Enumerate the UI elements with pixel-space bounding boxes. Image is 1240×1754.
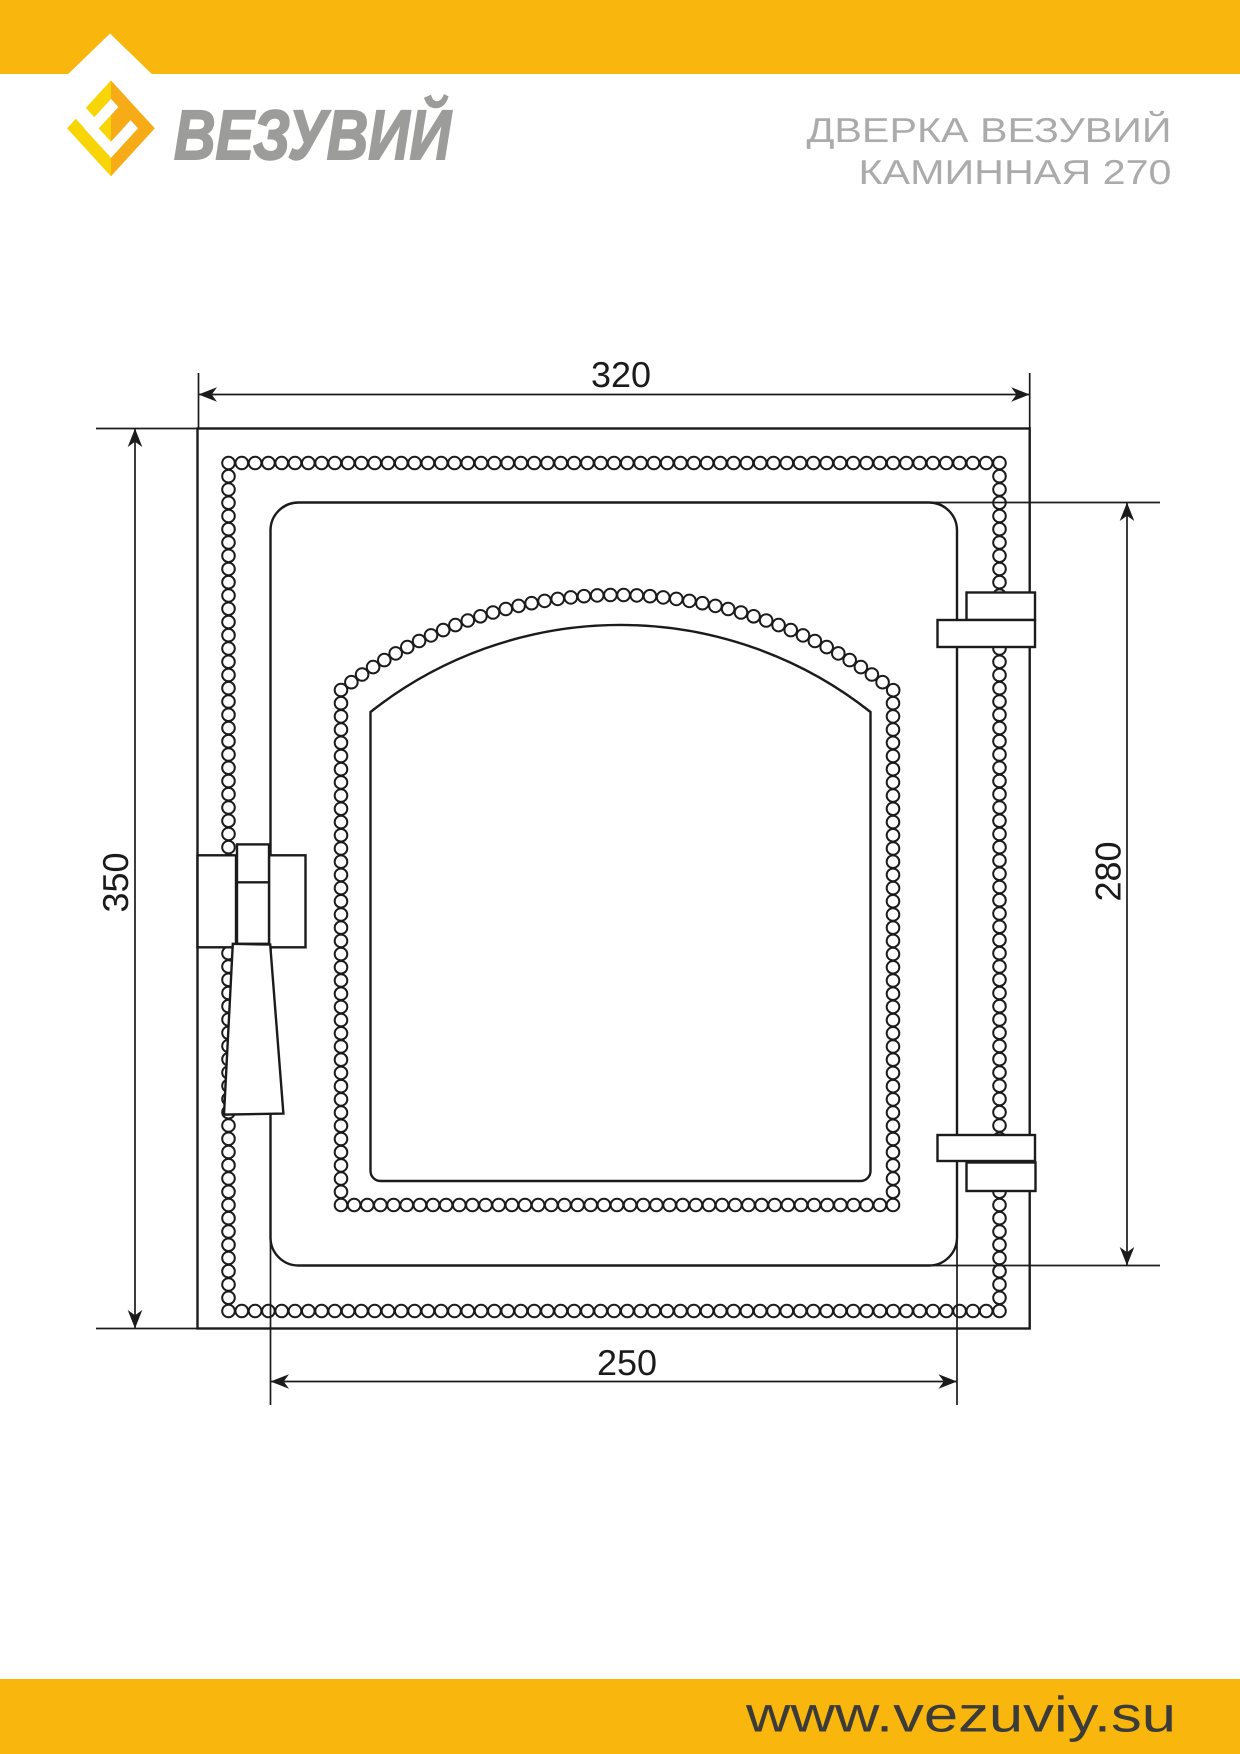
svg-text:320: 320 <box>591 354 651 395</box>
svg-text:КАМИННАЯ 270: КАМИННАЯ 270 <box>859 154 1172 192</box>
svg-text:250: 250 <box>597 1342 657 1383</box>
svg-text:350: 350 <box>95 852 136 912</box>
svg-text:www.vezuviy.su: www.vezuviy.su <box>745 1687 1176 1743</box>
svg-text:280: 280 <box>1087 841 1128 901</box>
svg-text:ВЕЗУВИЙ: ВЕЗУВИЙ <box>174 95 452 174</box>
svg-text:ДВЕРКА ВЕЗУВИЙ: ДВЕРКА ВЕЗУВИЙ <box>807 110 1172 150</box>
